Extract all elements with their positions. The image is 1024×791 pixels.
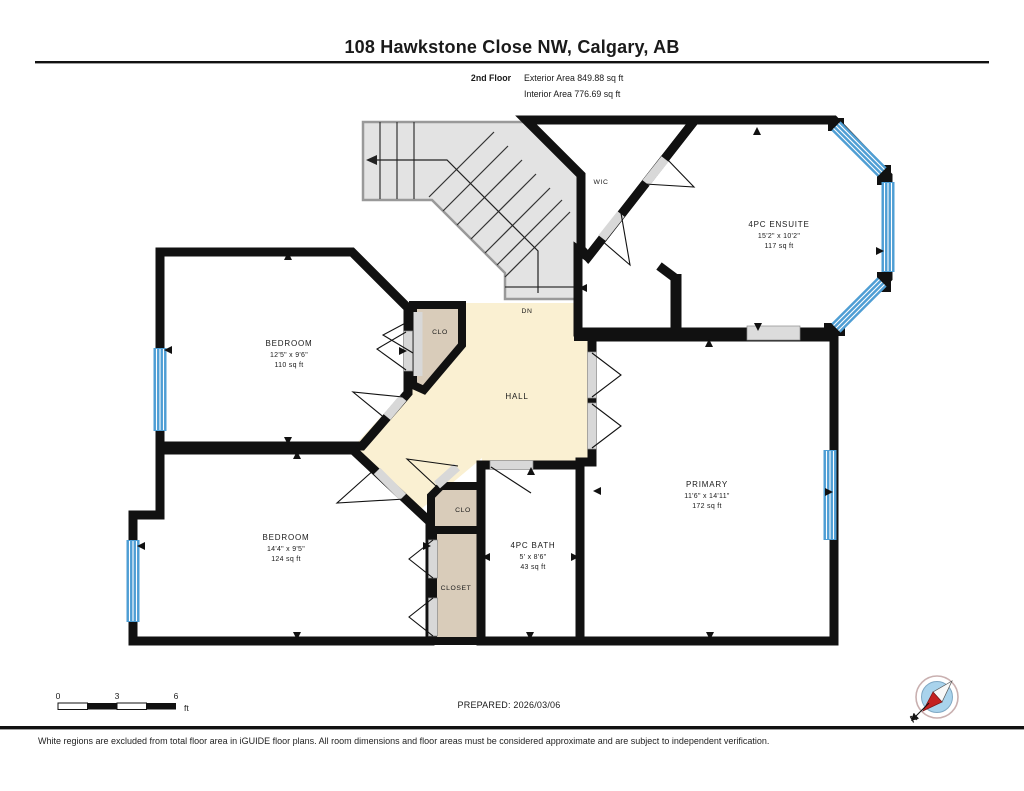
bath-dims: 5' x 8'6" bbox=[520, 554, 547, 561]
primary-name: PRIMARY bbox=[686, 480, 728, 489]
prepared-date: PREPARED: 2026/03/06 bbox=[458, 700, 561, 710]
bedroom-1-dims: 12'5" x 9'6" bbox=[270, 352, 308, 359]
bedroom-1-name: BEDROOM bbox=[266, 339, 313, 348]
room-primary bbox=[580, 337, 834, 641]
scale-tick-6: 6 bbox=[174, 691, 179, 701]
scale-tick-3: 3 bbox=[115, 691, 120, 701]
footer-divider bbox=[0, 726, 1024, 729]
bedroom-1-area: 110 sq ft bbox=[274, 362, 303, 369]
footer-disclaimer: White regions are excluded from total fl… bbox=[38, 736, 769, 746]
bath-area: 43 sq ft bbox=[520, 564, 545, 571]
ensuite-name: 4PC ENSUITE bbox=[748, 220, 809, 229]
clo-upper-label: CLO bbox=[432, 329, 448, 336]
window-bedroom-1 bbox=[157, 348, 164, 431]
window-ensuite-bay bbox=[834, 124, 892, 331]
scale-unit: ft bbox=[184, 703, 189, 713]
bedroom-2-dims: 14'4" x 9'5" bbox=[267, 546, 305, 553]
clo-lower-label: CLO bbox=[455, 507, 471, 514]
wic-label: WIC bbox=[593, 179, 608, 186]
bedroom-2-name: BEDROOM bbox=[263, 533, 310, 542]
page-title: 108 Hawkstone Close NW, Calgary, AB bbox=[344, 37, 679, 57]
hall-label: HALL bbox=[505, 392, 528, 401]
scale-bar: 0 3 6 ft bbox=[56, 691, 190, 713]
interior-area: Interior Area 776.69 sq ft bbox=[524, 89, 621, 99]
header-divider bbox=[35, 61, 989, 63]
ensuite-area: 117 sq ft bbox=[764, 243, 793, 250]
header: 108 Hawkstone Close NW, Calgary, AB 2nd … bbox=[35, 37, 989, 99]
bath-name: 4PC BATH bbox=[511, 541, 556, 550]
room-bath bbox=[481, 465, 580, 641]
dn-label: DN bbox=[521, 308, 532, 315]
window-primary bbox=[827, 450, 834, 540]
primary-dims: 11'6" x 14'11" bbox=[684, 493, 730, 500]
floor-plan-svg: 108 Hawkstone Close NW, Calgary, AB 2nd … bbox=[0, 0, 1024, 791]
ensuite-dims: 15'2" x 10'2" bbox=[758, 233, 801, 240]
window-bedroom-2 bbox=[130, 540, 137, 622]
bedroom-2-area: 124 sq ft bbox=[271, 556, 301, 563]
floor-label: 2nd Floor bbox=[471, 73, 512, 83]
plan: BEDROOM 12'5" x 9'6" 110 sq ft BEDROOM 1… bbox=[130, 118, 892, 641]
exterior-area: Exterior Area 849.88 sq ft bbox=[524, 73, 624, 83]
compass-north-label: N bbox=[908, 712, 921, 726]
room-bedroom-1 bbox=[160, 252, 408, 446]
closet-label: CLOSET bbox=[441, 585, 472, 592]
compass-icon: N bbox=[908, 676, 958, 725]
floor-plan-sheet: 108 Hawkstone Close NW, Calgary, AB 2nd … bbox=[0, 0, 1024, 791]
scale-tick-0: 0 bbox=[56, 691, 61, 701]
footer: White regions are excluded from total fl… bbox=[0, 726, 1024, 746]
room-ensuite bbox=[578, 120, 888, 332]
primary-area: 172 sq ft bbox=[692, 503, 722, 510]
